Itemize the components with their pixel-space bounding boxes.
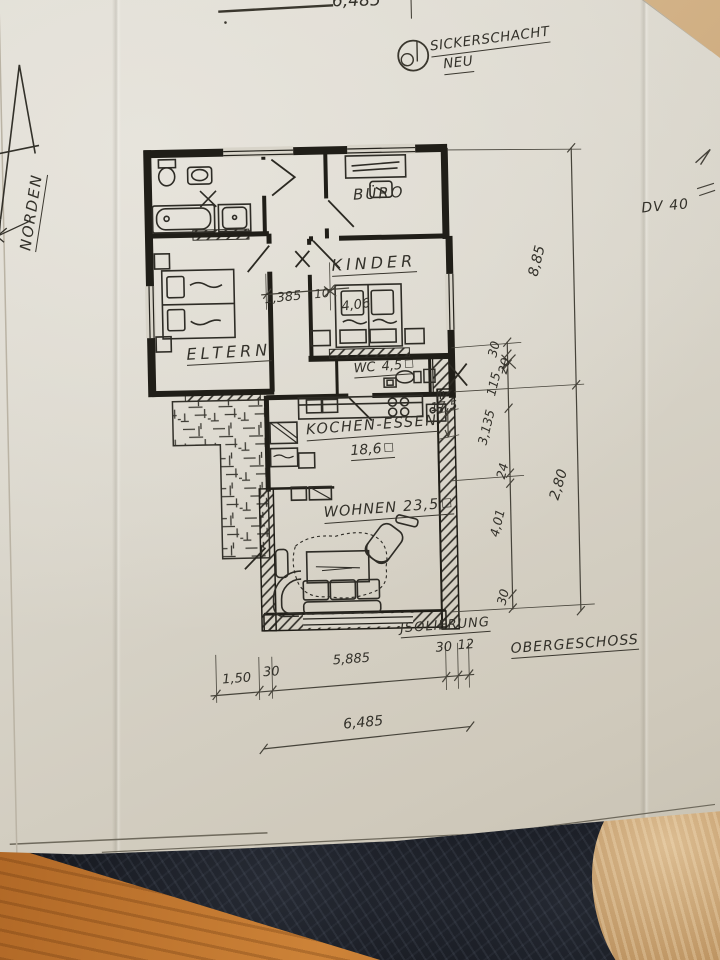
bathroom-fixtures [151,158,251,233]
dim-bottom-150: 1,50 [222,671,252,686]
dim-bottom-30b: 30 [435,641,452,655]
margin-marks [695,149,715,195]
kochen-area-value: 18,6 [350,441,382,459]
sqm-symbol-kochen: □ [383,440,395,454]
dim-kinder-10: 10 [314,287,330,301]
dim-kinder-1385: 1,385 [264,289,302,306]
sickerschacht-symbol [218,0,428,75]
dv40-label: DV 40 [641,197,690,215]
kochen-area: 18,6□ [350,441,395,461]
parents-room-furniture [154,252,235,352]
sqm-symbol-wc: □ [404,357,415,370]
dim-bottom-30a: 30 [263,665,280,679]
living-room-furniture [272,514,421,617]
sqm-symbol-wohnen: □ [441,494,454,509]
walls [144,144,459,635]
sickerschacht-neu-label: NEU [443,55,475,75]
dim-bottom-total: 6,485 [343,714,384,732]
paper-sheet: 6,485 SICKERSCHACHT NEU NORDEN DV 40 BÜR… [0,0,720,960]
dim-kinder-bed-406: 4,06 [341,297,371,314]
wc-area: 4,5 [381,358,403,374]
wc-name: WC [353,360,376,377]
plan-linework [0,0,720,960]
dim-wall-175: 17,5 [430,399,458,413]
dim-bottom-5885: 5,885 [332,652,370,668]
floor-plan: 6,485 SICKERSCHACHT NEU NORDEN DV 40 BÜR… [0,0,720,960]
photo-scene: 6,485 SICKERSCHACHT NEU NORDEN DV 40 BÜR… [0,0,720,960]
dim-bottom-12: 12 [457,638,474,652]
room-label-buero: BÜRO [353,185,405,203]
windows [142,143,462,631]
wohnen-area: 23,5 [402,497,439,516]
top-cut-dimension: 6,485 [332,0,381,10]
